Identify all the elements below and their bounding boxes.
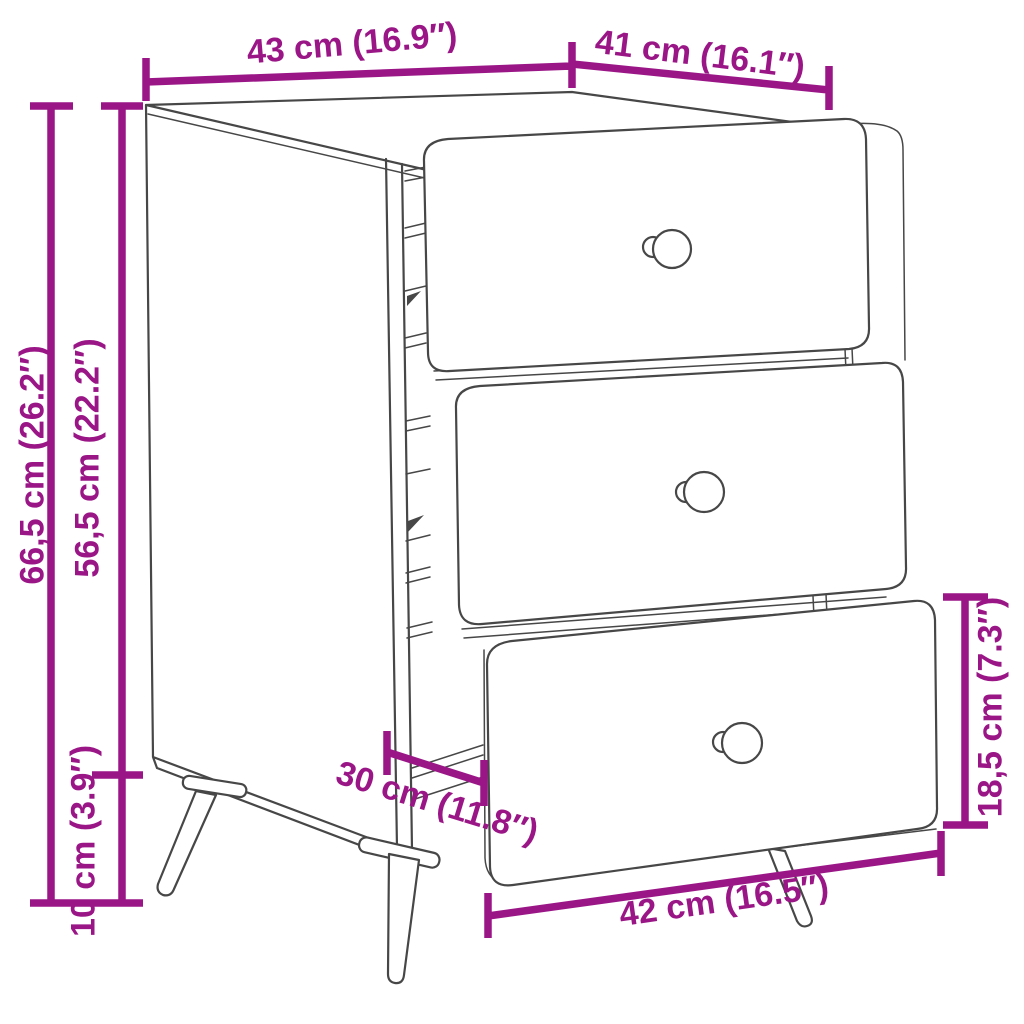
- label-drawer-height: 18,5 cm (7.3″): [972, 597, 1011, 817]
- leg-front: [388, 854, 419, 983]
- drawer-fronts: [424, 119, 937, 885]
- drawer-knob-middle: [684, 472, 724, 512]
- label-overall-height: 66,5 cm (26.2″): [14, 345, 53, 584]
- label-leg-height: 10 cm (3.9″): [65, 745, 104, 937]
- dimension-diagram: 43 cm (16.9″) 41 cm (16.1″) 66,5 cm (26.…: [0, 0, 1024, 1024]
- drawer-knob-bottom: [722, 723, 762, 763]
- side-panel: [146, 105, 391, 857]
- leg-left: [158, 791, 216, 895]
- drawer-knob-top: [653, 230, 691, 268]
- cabinet-drawing: [0, 0, 1024, 1024]
- label-body-height: 56,5 cm (22.2″): [69, 338, 108, 577]
